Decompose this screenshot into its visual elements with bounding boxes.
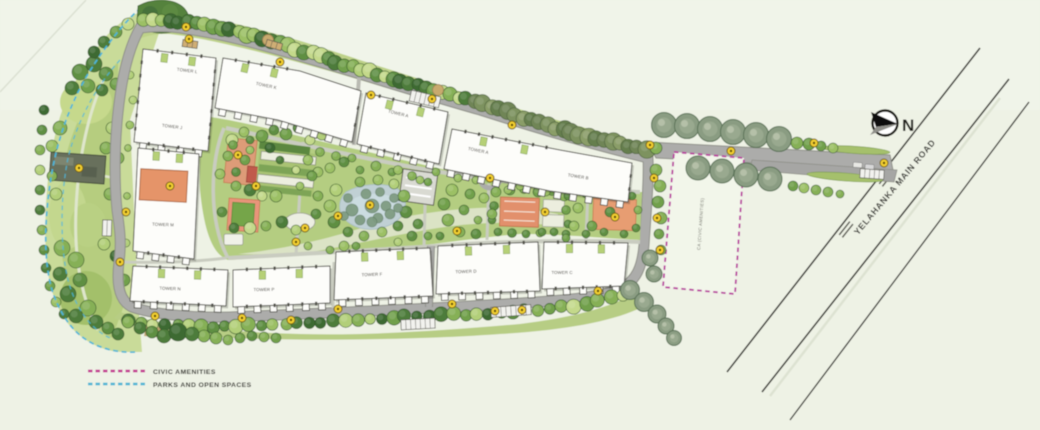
svg-text:CIVIC AMENITIES: CIVIC AMENITIES — [153, 369, 216, 376]
svg-text:TOWER M: TOWER M — [152, 222, 174, 228]
svg-text:TOWER F: TOWER F — [361, 272, 382, 278]
svg-text:TOWER D: TOWER D — [455, 269, 477, 275]
svg-text:TOWER C: TOWER C — [551, 270, 572, 275]
svg-text:N: N — [902, 116, 914, 135]
svg-text:TOWER P: TOWER P — [253, 287, 274, 292]
svg-text:PARKS AND OPEN SPACES: PARKS AND OPEN SPACES — [153, 382, 252, 389]
svg-text:TOWER N: TOWER N — [159, 286, 181, 292]
